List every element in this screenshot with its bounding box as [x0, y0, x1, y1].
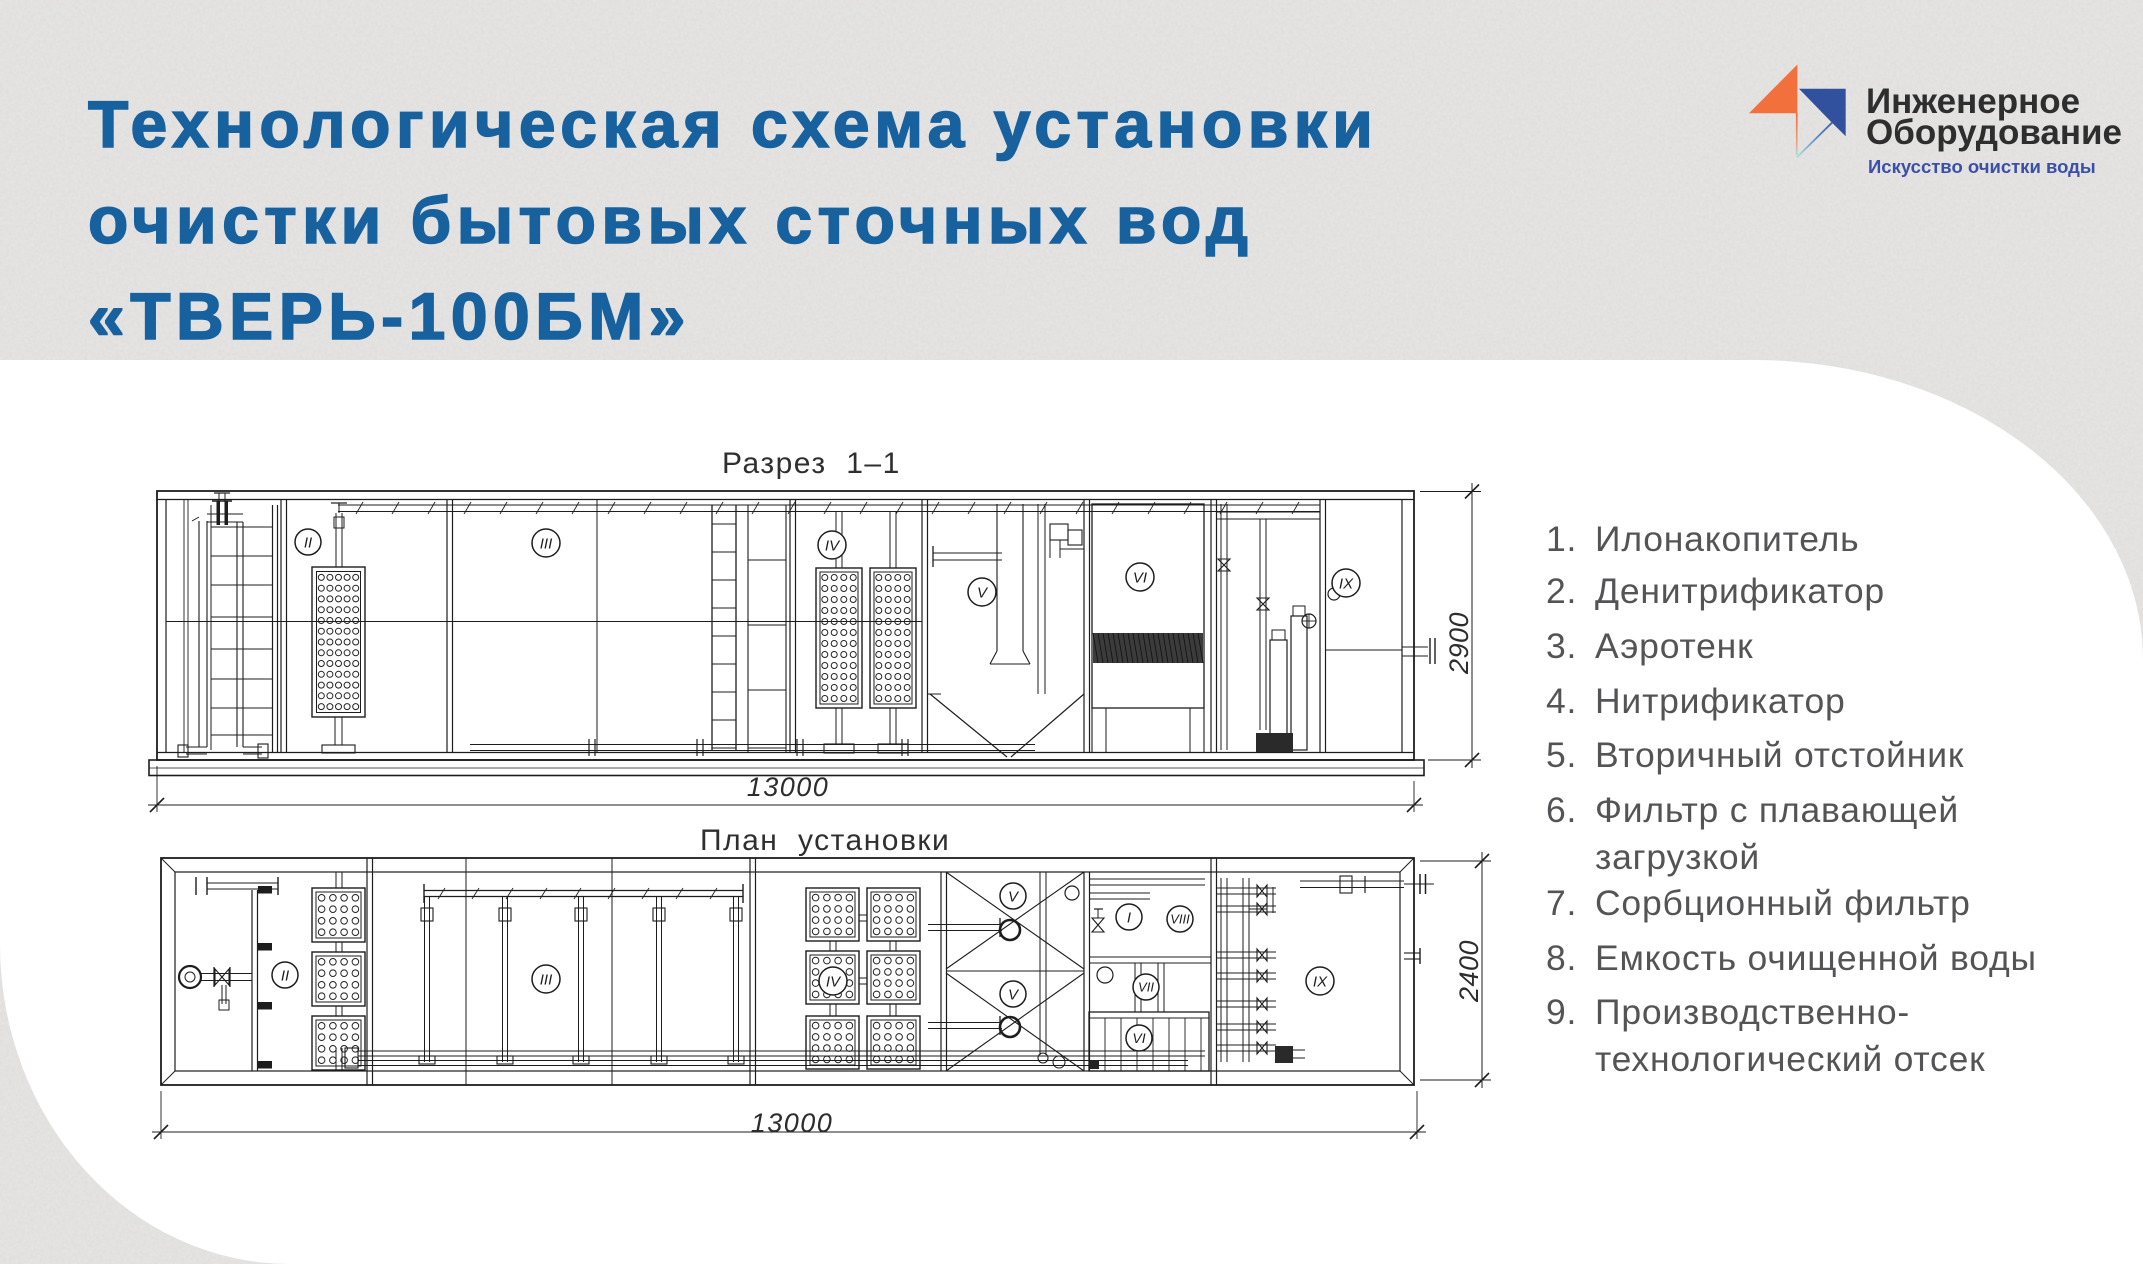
- svg-text:План установки: План установки: [700, 824, 950, 857]
- svg-text:I: I: [1127, 909, 1131, 926]
- svg-text:III: III: [540, 535, 553, 552]
- svg-text:VI: VI: [1132, 1030, 1145, 1046]
- svg-text:IX: IX: [1339, 575, 1354, 592]
- svg-text:II: II: [281, 967, 289, 984]
- svg-text:VIII: VIII: [1170, 912, 1190, 927]
- svg-text:Разрез 1–1: Разрез 1–1: [722, 447, 901, 480]
- svg-text:13000: 13000: [747, 772, 830, 802]
- svg-text:2400: 2400: [1454, 940, 1484, 1003]
- svg-text:VI: VI: [1133, 569, 1147, 586]
- svg-text:III: III: [540, 971, 553, 988]
- svg-text:VII: VII: [1138, 980, 1154, 995]
- svg-text:IV: IV: [826, 973, 842, 990]
- svg-text:II: II: [304, 534, 312, 551]
- svg-text:13000: 13000: [751, 1108, 834, 1138]
- svg-text:IV: IV: [825, 537, 841, 554]
- svg-text:IX: IX: [1313, 973, 1328, 990]
- svg-text:2900: 2900: [1444, 612, 1474, 675]
